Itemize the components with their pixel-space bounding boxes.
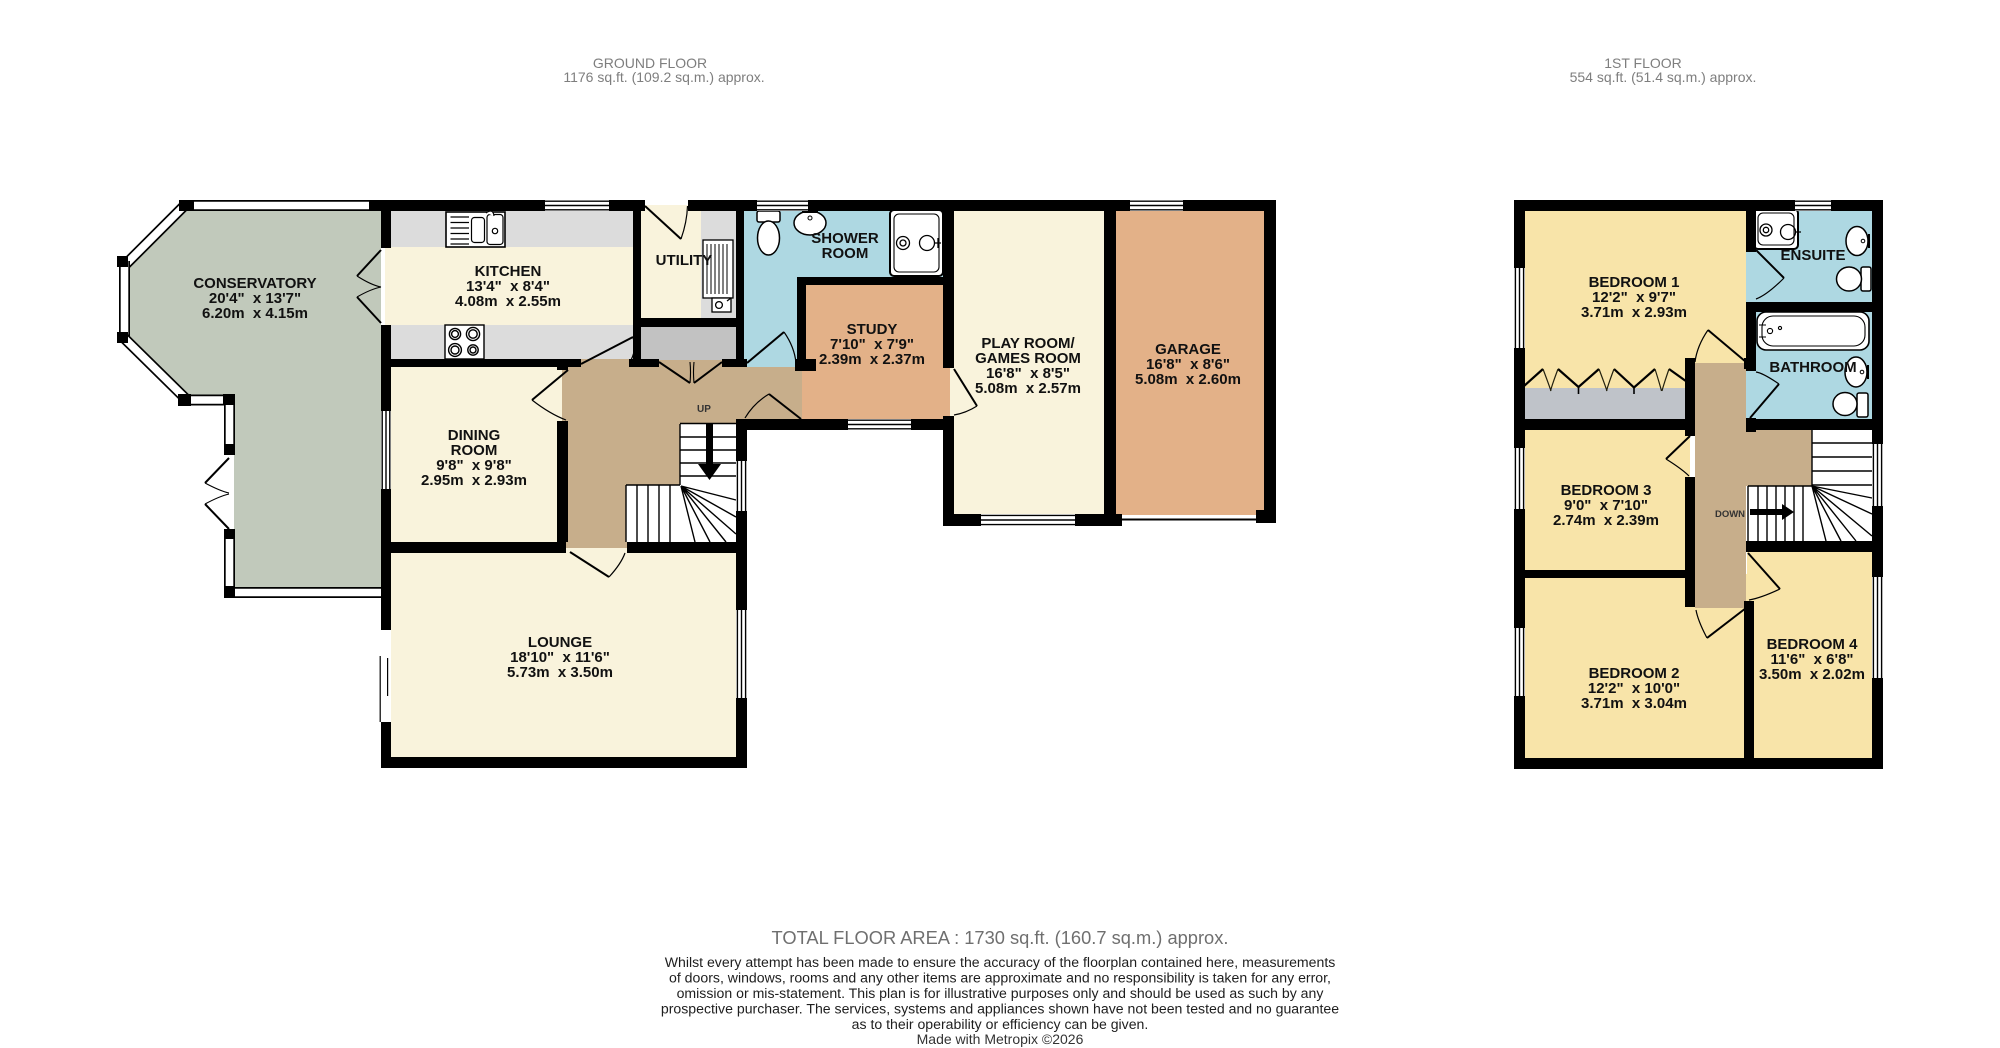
svg-text:ROOM: ROOM [822, 245, 869, 262]
svg-text:4.08m x 2.55m: 4.08m x 2.55m [455, 293, 561, 310]
svg-text:Made with Metropix ©2026: Made with Metropix ©2026 [917, 1031, 1084, 1047]
svg-text:6.20m x 4.15m: 6.20m x 4.15m [202, 305, 308, 322]
svg-text:ENSUITE: ENSUITE [1780, 247, 1845, 264]
svg-text:as to their operability or eff: as to their operability or efficiency ca… [852, 1016, 1149, 1032]
svg-text:2.95m x 2.93m: 2.95m x 2.93m [421, 472, 527, 489]
svg-text:DOWN: DOWN [1715, 509, 1745, 520]
svg-text:1176 sq.ft. (109.2 sq.m.) appr: 1176 sq.ft. (109.2 sq.m.) approx. [563, 69, 764, 85]
svg-text:UP: UP [697, 404, 711, 415]
svg-text:3.71m x 2.93m: 3.71m x 2.93m [1581, 304, 1687, 321]
svg-text:5.08m x 2.57m: 5.08m x 2.57m [975, 380, 1081, 397]
svg-text:554 sq.ft. (51.4 sq.m.) approx: 554 sq.ft. (51.4 sq.m.) approx. [1570, 69, 1757, 85]
svg-text:5.73m x 3.50m: 5.73m x 3.50m [507, 664, 613, 681]
svg-text:omission or mis-statement. Thi: omission or mis-statement. This plan is … [677, 985, 1325, 1001]
svg-text:3.71m x 3.04m: 3.71m x 3.04m [1581, 695, 1687, 712]
svg-text:Whilst every attempt has been: Whilst every attempt has been made to en… [665, 954, 1336, 970]
svg-text:5.08m x 2.60m: 5.08m x 2.60m [1135, 371, 1241, 388]
svg-text:of doors, windows, rooms and a: of doors, windows, rooms and any other i… [669, 970, 1331, 986]
svg-text:2.74m x 2.39m: 2.74m x 2.39m [1553, 512, 1659, 529]
svg-text:2.39m x 2.37m: 2.39m x 2.37m [819, 351, 925, 368]
svg-text:prospective purchaser. The ser: prospective purchaser. The services, sys… [661, 1001, 1339, 1017]
svg-text:UTILITY: UTILITY [656, 252, 713, 269]
svg-text:BATHROOM: BATHROOM [1769, 359, 1856, 376]
svg-text:TOTAL FLOOR AREA : 1730 sq.ft.: TOTAL FLOOR AREA : 1730 sq.ft. (160.7 sq… [772, 927, 1229, 948]
svg-text:3.50m x 2.02m: 3.50m x 2.02m [1759, 666, 1865, 683]
